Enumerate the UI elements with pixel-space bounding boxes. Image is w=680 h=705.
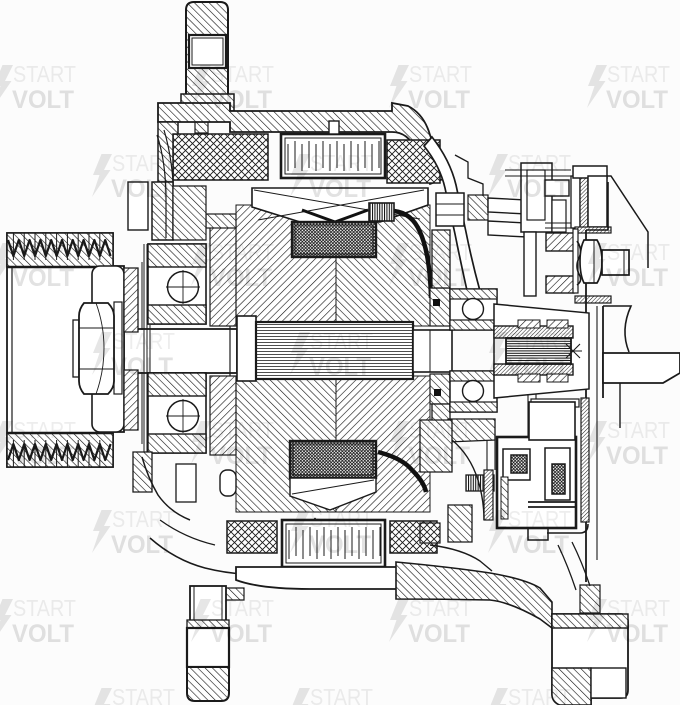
svg-text:VOLT: VOLT: [210, 620, 272, 648]
svg-text:START: START: [13, 595, 76, 621]
svg-text:START: START: [310, 684, 373, 705]
svg-text:START: START: [13, 61, 76, 87]
svg-text:START: START: [112, 684, 175, 705]
svg-text:VOLT: VOLT: [309, 353, 371, 381]
svg-text:VOLT: VOLT: [12, 442, 74, 470]
svg-text:START: START: [310, 150, 373, 176]
svg-text:VOLT: VOLT: [210, 264, 272, 292]
svg-text:VOLT: VOLT: [210, 86, 272, 114]
svg-text:START: START: [211, 61, 274, 87]
svg-text:VOLT: VOLT: [507, 175, 569, 203]
svg-text:START: START: [211, 595, 274, 621]
svg-text:START: START: [607, 61, 670, 87]
svg-text:VOLT: VOLT: [606, 442, 668, 470]
svg-text:VOLT: VOLT: [12, 264, 74, 292]
svg-text:VOLT: VOLT: [507, 353, 569, 381]
svg-text:VOLT: VOLT: [606, 264, 668, 292]
svg-text:START: START: [13, 239, 76, 265]
svg-text:START: START: [13, 417, 76, 443]
svg-text:START: START: [310, 328, 373, 354]
svg-text:START: START: [112, 150, 175, 176]
svg-text:START: START: [211, 417, 274, 443]
svg-text:START: START: [112, 506, 175, 532]
svg-text:START: START: [211, 239, 274, 265]
svg-text:VOLT: VOLT: [210, 442, 272, 470]
svg-text:START: START: [607, 417, 670, 443]
svg-text:START: START: [310, 506, 373, 532]
svg-text:VOLT: VOLT: [111, 531, 173, 559]
svg-text:VOLT: VOLT: [111, 175, 173, 203]
svg-text:START: START: [508, 150, 571, 176]
svg-text:START: START: [508, 506, 571, 532]
svg-text:VOLT: VOLT: [309, 531, 371, 559]
svg-text:START: START: [508, 328, 571, 354]
svg-text:VOLT: VOLT: [606, 86, 668, 114]
svg-text:VOLT: VOLT: [111, 353, 173, 381]
svg-text:VOLT: VOLT: [408, 264, 470, 292]
svg-text:VOLT: VOLT: [507, 531, 569, 559]
svg-text:VOLT: VOLT: [606, 620, 668, 648]
svg-text:START: START: [409, 61, 472, 87]
svg-text:START: START: [112, 328, 175, 354]
svg-text:VOLT: VOLT: [12, 86, 74, 114]
svg-text:VOLT: VOLT: [408, 620, 470, 648]
svg-text:VOLT: VOLT: [408, 442, 470, 470]
svg-text:START: START: [409, 239, 472, 265]
svg-text:START: START: [508, 684, 571, 705]
svg-text:START: START: [607, 595, 670, 621]
svg-text:VOLT: VOLT: [408, 86, 470, 114]
svg-text:VOLT: VOLT: [12, 620, 74, 648]
svg-text:START: START: [607, 239, 670, 265]
svg-text:START: START: [409, 417, 472, 443]
svg-text:START: START: [409, 595, 472, 621]
svg-text:VOLT: VOLT: [309, 175, 371, 203]
